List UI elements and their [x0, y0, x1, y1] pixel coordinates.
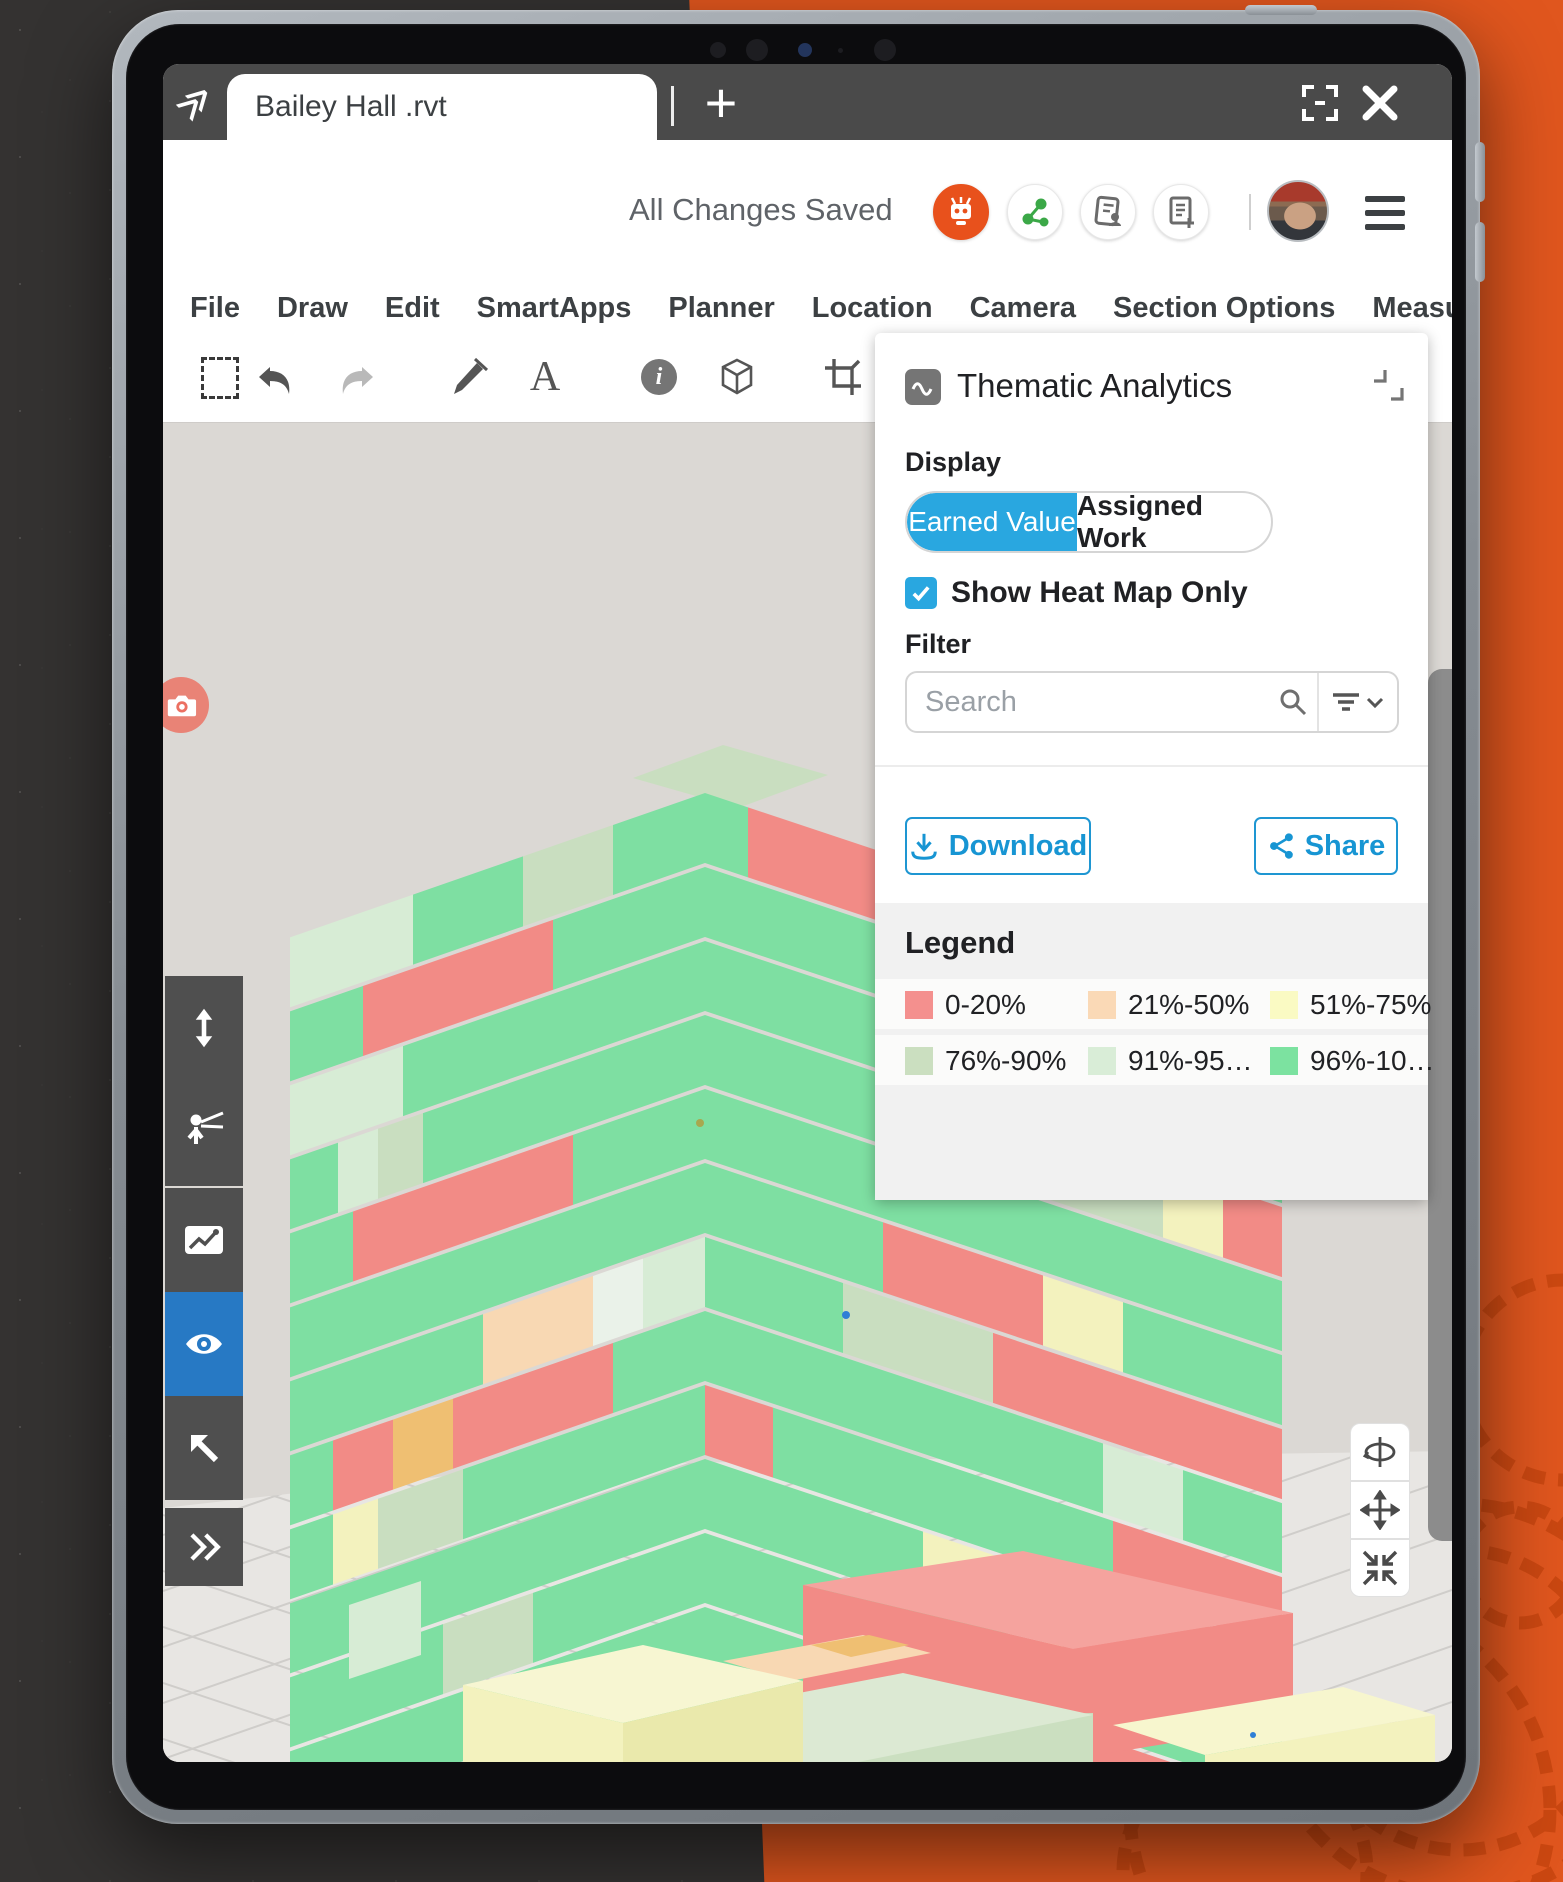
- text-tool-icon[interactable]: A: [523, 355, 567, 399]
- search-placeholder: Search: [925, 686, 1277, 719]
- search-icon: [1277, 686, 1309, 718]
- zoom-fit-button[interactable]: [1350, 1539, 1410, 1597]
- sensor-dot-2: [874, 39, 896, 61]
- legend-swatch: [905, 1047, 933, 1075]
- mic-dot: [838, 48, 843, 53]
- header-separator: [1249, 194, 1251, 230]
- visibility-tool-button-active[interactable]: [165, 1292, 243, 1396]
- elevation-tool-button[interactable]: [165, 976, 243, 1080]
- eye-icon: [181, 1324, 227, 1364]
- display-toggle: Earned Value Assigned Work: [905, 491, 1273, 553]
- filter-search-field[interactable]: Search: [905, 671, 1399, 733]
- legend-item: 91%-95…: [1088, 1045, 1253, 1077]
- menu-location[interactable]: Location: [812, 292, 933, 325]
- download-icon: [909, 831, 939, 861]
- page: { "window": { "tab_title": "Bailey Hall …: [0, 0, 1563, 1882]
- chevron-down-icon[interactable]: [1363, 690, 1387, 714]
- thematic-analytics-panel: Thematic Analytics Display Earned Value …: [875, 333, 1428, 1200]
- download-button[interactable]: Download: [905, 817, 1091, 875]
- document-tab[interactable]: Bailey Hall .rvt: [227, 74, 657, 140]
- filter-label: Filter: [905, 629, 971, 660]
- legend-swatch: [1088, 1047, 1116, 1075]
- share-button[interactable]: Share: [1254, 817, 1398, 875]
- person-view-icon: [182, 1110, 226, 1154]
- double-chevron-right-icon: [182, 1528, 226, 1566]
- legend-item: 0-20%: [905, 989, 1026, 1021]
- panel-title: Thematic Analytics: [957, 367, 1232, 405]
- share-label: Share: [1305, 830, 1386, 863]
- heatmap-checkbox[interactable]: [905, 577, 937, 609]
- legend-item: 21%-50%: [1088, 989, 1249, 1021]
- legend-swatch: [1270, 991, 1298, 1019]
- toggle-assigned-work[interactable]: Assigned Work: [1077, 493, 1271, 551]
- toggle-earned-value[interactable]: Earned Value: [907, 493, 1077, 551]
- view-nav-group: [1350, 1423, 1410, 1597]
- camera-icon: [165, 689, 197, 721]
- sensor-dot: [710, 42, 726, 58]
- menu-bar: File Draw Edit SmartApps Planner Locatio…: [163, 285, 1452, 331]
- legend-row-1: 0-20% 21%-50% 51%-75%: [875, 979, 1428, 1029]
- download-label: Download: [949, 830, 1088, 863]
- legend-swatch: [905, 991, 933, 1019]
- first-person-view-button[interactable]: [165, 1080, 243, 1184]
- panel-divider: [875, 765, 1428, 767]
- menu-planner[interactable]: Planner: [668, 292, 774, 325]
- view-tools-group-1: [165, 976, 243, 1186]
- menu-draw[interactable]: Draw: [277, 292, 348, 325]
- legend-swatch: [1270, 1047, 1298, 1075]
- marquee-select-icon[interactable]: [201, 357, 239, 399]
- share-icon: [1267, 832, 1295, 860]
- pan-button[interactable]: [1350, 1481, 1410, 1539]
- filter-lines-icon[interactable]: [1329, 687, 1363, 717]
- tab-bar: ≫ Bailey Hall .rvt +: [163, 64, 1452, 140]
- view-tools-group-2: [165, 1188, 243, 1500]
- add-sheet-button[interactable]: [1153, 184, 1209, 240]
- menu-file[interactable]: File: [190, 292, 240, 325]
- check-icon: [909, 581, 933, 605]
- collapse-arrows-icon: [1360, 1548, 1400, 1588]
- menu-smartapps[interactable]: SmartApps: [477, 292, 632, 325]
- new-tab-button[interactable]: +: [689, 66, 753, 138]
- undo-icon[interactable]: [253, 355, 297, 399]
- tab-title: Bailey Hall .rvt: [255, 90, 447, 124]
- assistant-bot-button[interactable]: [933, 184, 989, 240]
- legend-item: 76%-90%: [905, 1045, 1066, 1077]
- tab-separator: [671, 86, 674, 126]
- tablet-device: ≫ Bailey Hall .rvt + All Changes Saved: [112, 10, 1480, 1824]
- menu-hamburger-icon[interactable]: [1365, 196, 1405, 230]
- side-drawer-handle[interactable]: [1428, 669, 1452, 1541]
- display-label: Display: [905, 447, 1001, 478]
- chart-image-icon: [182, 1220, 226, 1260]
- select-pointer-button[interactable]: [165, 1396, 243, 1500]
- analytics-view-button[interactable]: [165, 1188, 243, 1292]
- legend-swatch: [1088, 991, 1116, 1019]
- volume-up-button[interactable]: [1475, 142, 1485, 202]
- molecule-icon: [1018, 195, 1052, 229]
- save-status: All Changes Saved: [629, 192, 893, 228]
- app-screen: ≫ Bailey Hall .rvt + All Changes Saved: [163, 64, 1452, 1762]
- legend-row-2: 76%-90% 91%-95… 96%-10…: [875, 1035, 1428, 1085]
- camera-lens-glint: [798, 43, 812, 57]
- legend-item: 51%-75%: [1270, 989, 1431, 1021]
- dock-panel-icon[interactable]: [1370, 367, 1406, 403]
- cube-3d-icon[interactable]: [715, 355, 759, 399]
- app-header: All Changes Saved: [163, 140, 1452, 285]
- notes-button[interactable]: [1080, 184, 1136, 240]
- camera-lens: [746, 39, 768, 61]
- menu-edit[interactable]: Edit: [385, 292, 440, 325]
- volume-down-button[interactable]: [1475, 222, 1485, 282]
- orbit-icon: [1360, 1432, 1400, 1472]
- model-graph-button[interactable]: [1007, 184, 1063, 240]
- power-button[interactable]: [1245, 5, 1317, 15]
- app-logo-icon[interactable]: ≫: [169, 76, 221, 128]
- menu-measure[interactable]: Measure: [1372, 292, 1452, 325]
- info-icon[interactable]: i: [637, 355, 681, 399]
- analytics-panel-icon: [905, 369, 941, 405]
- close-icon[interactable]: [1359, 82, 1401, 124]
- menu-camera[interactable]: Camera: [970, 292, 1076, 325]
- pan-icon: [1360, 1490, 1400, 1530]
- collapse-toolbar-button[interactable]: [165, 1508, 243, 1586]
- heatmap-checkbox-label: Show Heat Map Only: [951, 576, 1248, 610]
- marker-pen-icon[interactable]: [447, 355, 491, 399]
- fullscreen-icon[interactable]: [1299, 82, 1341, 124]
- document-plus-icon: [1164, 195, 1198, 229]
- crop-icon[interactable]: [821, 355, 865, 399]
- user-avatar[interactable]: [1267, 180, 1329, 242]
- vertical-arrows-icon: [184, 1006, 224, 1050]
- legend-section: Legend 0-20% 21%-50% 51%-75%: [875, 903, 1428, 1200]
- legend-item: 96%-10…: [1270, 1045, 1435, 1077]
- document-person-icon: [1091, 195, 1125, 229]
- redo-icon[interactable]: [335, 355, 379, 399]
- search-divider: [1317, 673, 1319, 731]
- legend-title: Legend: [905, 925, 1015, 961]
- orbit-button[interactable]: [1350, 1423, 1410, 1481]
- robot-icon: [944, 195, 978, 229]
- menu-section-options[interactable]: Section Options: [1113, 292, 1335, 325]
- arrow-up-left-icon: [184, 1428, 224, 1468]
